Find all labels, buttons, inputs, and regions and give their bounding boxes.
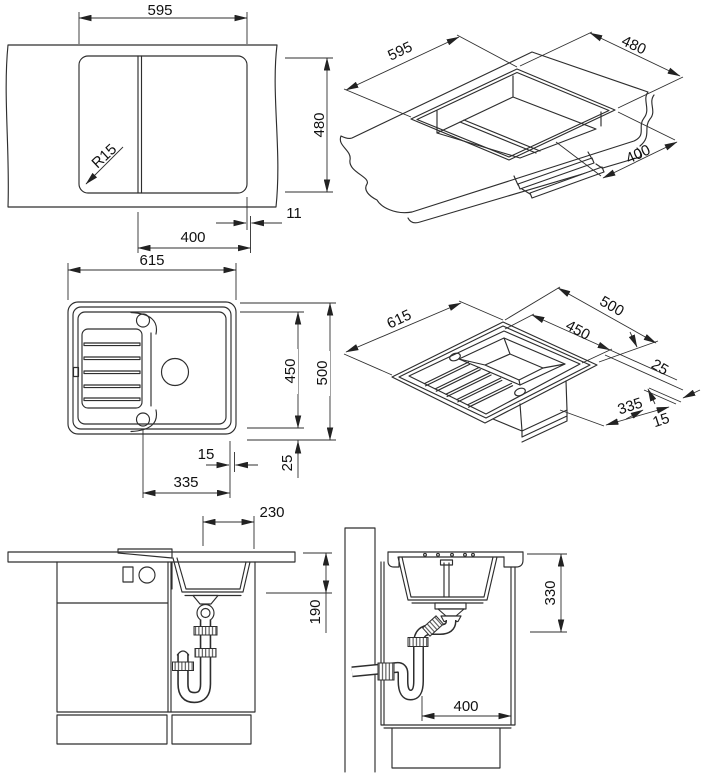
- rim-detail-dot: [451, 553, 454, 556]
- sink-side-section: [388, 552, 523, 603]
- plinth-drawer: [57, 715, 167, 744]
- dim-label-plan-edge: 15: [198, 446, 215, 463]
- siphon-front: [173, 596, 219, 698]
- sink-iso-body: [392, 322, 597, 442]
- dim-label-bowl-cut: 400: [180, 229, 205, 246]
- siphon-side: [352, 603, 466, 695]
- dim-label-iso2-edge: 15: [651, 410, 672, 431]
- countertop-outline: [6, 45, 278, 207]
- appliance-knob-icon: [139, 567, 155, 583]
- dim-side-mount-depth: 330: [527, 554, 567, 632]
- tap-hole-icon: [514, 387, 527, 397]
- dim-cutout-height: 480: [285, 58, 333, 192]
- pipe-coupling-icon: [195, 649, 216, 658]
- drain-rib: [84, 385, 140, 388]
- dim-label-cutout-height: 480: [311, 112, 328, 137]
- dim-front-drain-offset: 230: [203, 504, 285, 549]
- technical-drawing-page: 595 480 R15 11 400: [0, 0, 728, 776]
- drain-flange-icon: [435, 603, 466, 609]
- view-sink-iso: 615 500 450 25 335 15: [344, 287, 700, 442]
- cutout-rectangle: [79, 56, 247, 193]
- dim-label-plan-rim-margin: 25: [279, 455, 296, 472]
- pipe-coupling-icon: [173, 662, 194, 671]
- dim-plan-width: 615: [68, 252, 236, 300]
- dim-side-drain-offset: 400: [422, 696, 511, 721]
- pipe-coupling-icon: [378, 663, 394, 680]
- wall-section: [345, 528, 375, 772]
- dim-front-bowl-depth: 190: [266, 553, 332, 633]
- view-front-elevation: 230 190: [8, 504, 332, 744]
- view-counter-iso: 595 480 400: [340, 32, 683, 223]
- drain-hole-icon: [162, 359, 189, 386]
- sink-outline: [68, 302, 236, 434]
- appliance-switch-icon: [123, 567, 133, 582]
- rim-detail-dot: [424, 553, 427, 556]
- pipe-coupling-icon: [408, 638, 428, 647]
- drain-rib: [84, 357, 140, 360]
- dim-label-plan-length: 500: [314, 360, 331, 385]
- dim-label-side-mount-depth: 330: [542, 580, 559, 605]
- dim-label-plan-bowl-width: 335: [173, 474, 198, 491]
- rim-detail-dot: [464, 553, 467, 556]
- drain-nut-icon: [197, 605, 214, 622]
- dim-label-edge-offset: 11: [286, 205, 302, 222]
- dim-label-plan-inner-length: 450: [282, 358, 299, 383]
- drainboard-ribs-iso: [424, 362, 512, 407]
- drain-rib: [84, 343, 140, 346]
- dim-label-iso-bowl-width: 400: [623, 141, 653, 167]
- dim-label-front-bowl-depth: 190: [307, 599, 324, 624]
- view-cutout-plan: 595 480 R15 11 400: [6, 2, 333, 253]
- dim-label-cutout-width: 595: [147, 2, 172, 19]
- counter-cutout-opening: [411, 69, 615, 160]
- drain-rib: [84, 371, 140, 374]
- dim-corner-radius: R15: [86, 141, 123, 184]
- dim-label-plan-width: 615: [139, 252, 164, 269]
- dim-cutout-width: 595: [79, 2, 247, 44]
- dim-edge-offset: 11: [216, 197, 302, 230]
- cutout-divider-line: [138, 56, 142, 193]
- bowl-front-section: [172, 558, 250, 596]
- drainboard: [74, 329, 143, 408]
- dim-bowl-cut: 400: [138, 212, 251, 253]
- pipe-coupling-icon: [194, 627, 217, 636]
- dim-label-iso-depth: 480: [619, 32, 649, 58]
- dim-label-iso-width: 595: [385, 38, 415, 64]
- dim-label-iso2-width: 615: [384, 306, 414, 332]
- overflow-pipe: [444, 563, 449, 597]
- cabinet-front: [8, 549, 295, 744]
- dim-label-side-drain-offset: 400: [453, 698, 478, 715]
- dim-label-front-drain-offset: 230: [259, 504, 284, 521]
- dim-label-iso2-depth: 500: [597, 293, 627, 320]
- tap-hole-icon: [449, 352, 462, 362]
- dim-iso2-rim-margin: 25: [599, 332, 683, 404]
- sink-drawing-canvas: 595 480 R15 11 400: [0, 0, 728, 776]
- rim-detail-dot: [437, 553, 440, 556]
- rim-detail-dot: [472, 553, 475, 556]
- dim-plan-rim-margin: 25: [279, 440, 298, 478]
- drain-rib: [84, 398, 140, 401]
- dim-plan-edge: 15: [198, 441, 258, 498]
- view-sink-plan: 615 450 500 25 15 335: [68, 252, 336, 498]
- dim-iso-depth: 480: [520, 32, 683, 108]
- dim-plan-bowl-width: 335: [143, 429, 230, 498]
- dim-plan-inner-length: 450: [240, 312, 304, 428]
- plinth-drawer: [172, 715, 251, 744]
- view-side-elevation: 330 400: [345, 528, 567, 772]
- dim-iso-width: 595: [344, 35, 517, 117]
- dim-label-corner-radius: R15: [88, 141, 120, 172]
- drain-funnel-icon: [193, 596, 218, 605]
